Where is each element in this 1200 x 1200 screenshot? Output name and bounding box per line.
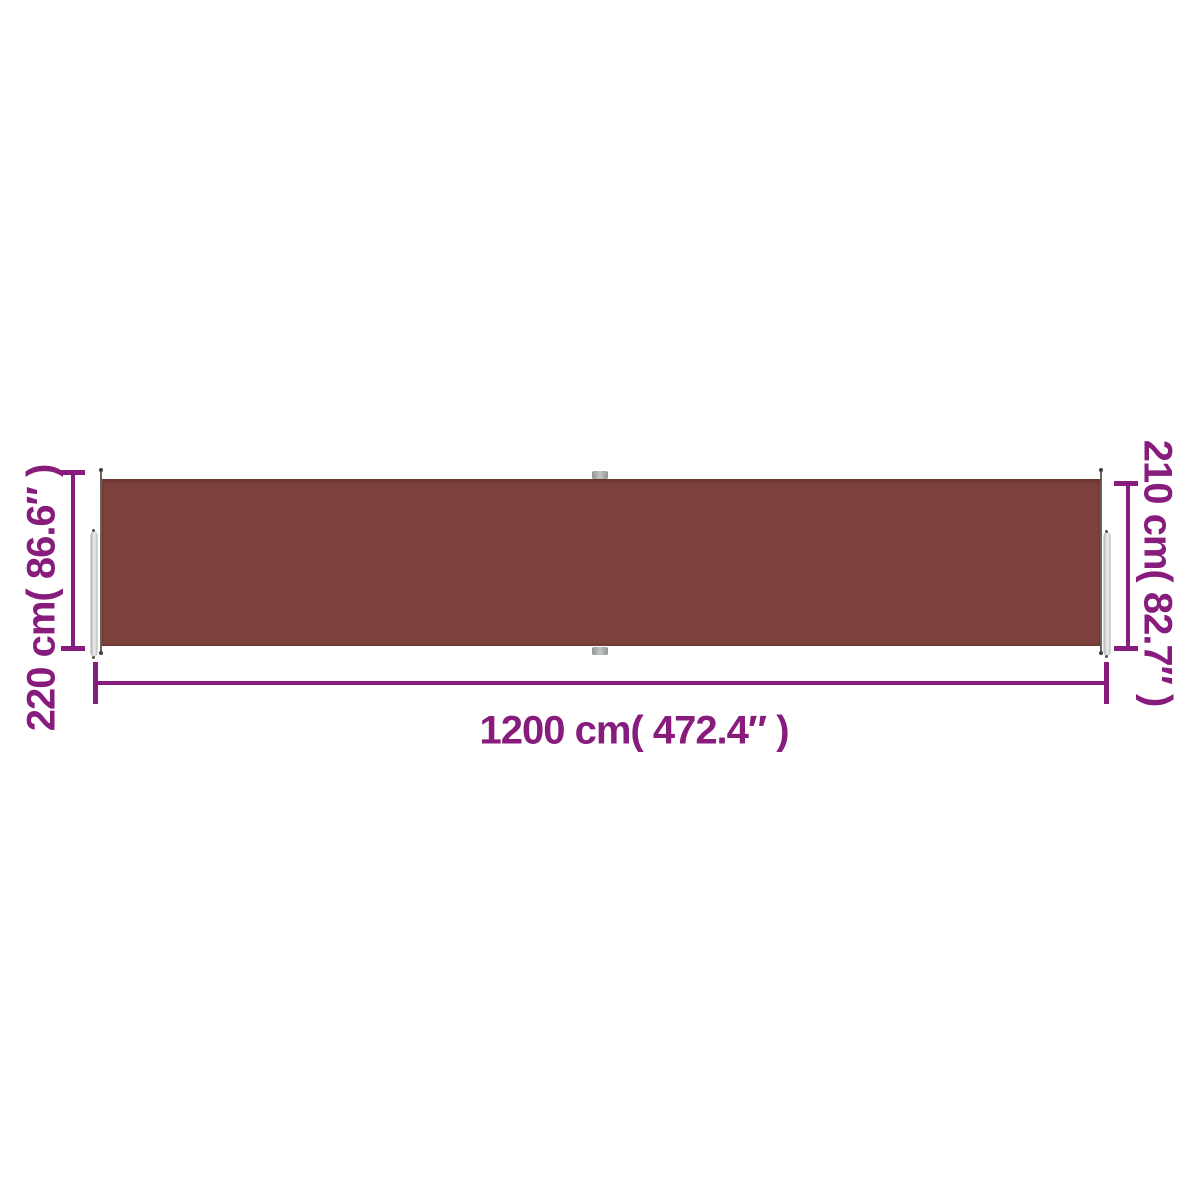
bottom-dimension-right-cap: [1104, 662, 1109, 704]
awning-right-edge-rod: [1100, 471, 1102, 652]
left-dimension-top-cap: [61, 470, 85, 475]
awning-center-pole: [592, 471, 608, 655]
bottom-dimension-line: [95, 681, 1107, 685]
left-dimension-bottom-cap: [61, 646, 85, 651]
awning-left-post: [91, 532, 97, 656]
awning-left-edge-rod: [100, 471, 102, 652]
left-dimension-label: 220 cm( 86.6″ ): [20, 465, 65, 732]
bottom-dimension-left-cap: [93, 662, 98, 704]
product-dimension-diagram: 220 cm( 86.6″ ) 210 cm( 82.7″ ) 1200 cm(…: [0, 0, 1200, 1200]
bottom-dimension-label: 1200 cm( 472.4″ ): [479, 709, 788, 754]
awning-right-post: [1104, 533, 1110, 655]
right-dimension-line: [1126, 484, 1130, 649]
right-dimension-label: 210 cm( 82.7″ ): [1135, 440, 1180, 707]
left-dimension-line: [71, 472, 75, 649]
